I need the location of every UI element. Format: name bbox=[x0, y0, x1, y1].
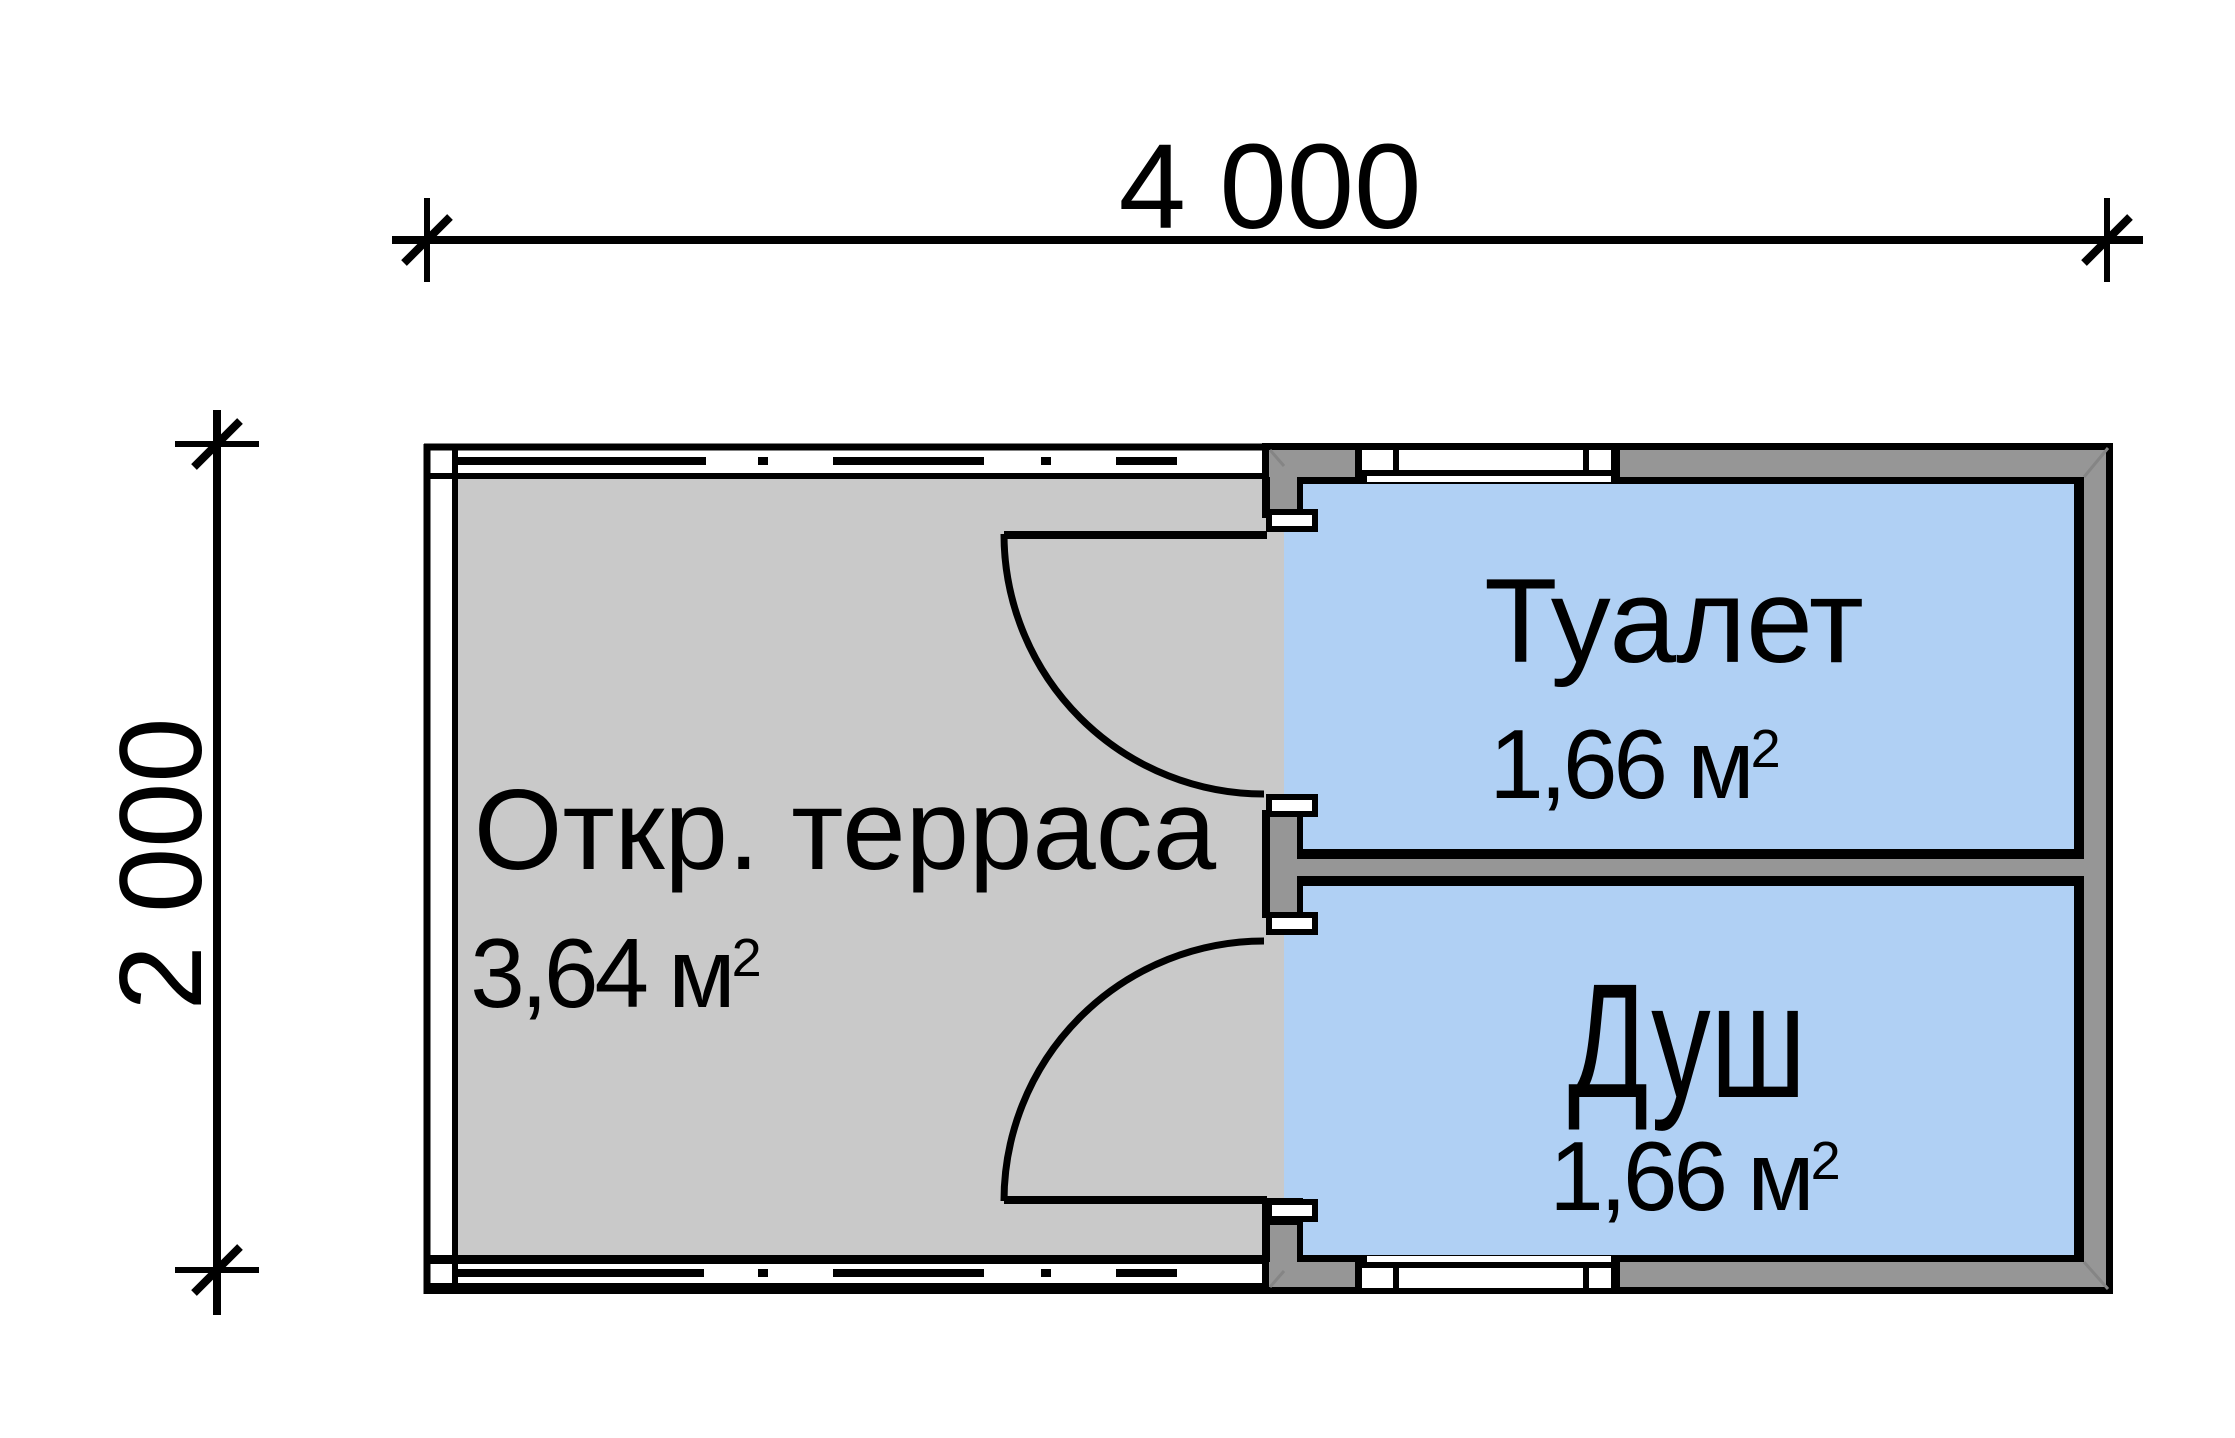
svg-text:1,66 м2: 1,66 м2 bbox=[1489, 709, 1780, 819]
svg-text:Душ: Душ bbox=[1568, 951, 1806, 1133]
svg-text:Откр. терраса: Откр. терраса bbox=[474, 767, 1217, 894]
svg-text:1,66 м2: 1,66 м2 bbox=[1549, 1121, 1840, 1231]
svg-text:3,64 м2: 3,64 м2 bbox=[470, 918, 761, 1028]
svg-text:4 000: 4 000 bbox=[1119, 118, 1422, 254]
svg-text:Туалет: Туалет bbox=[1484, 554, 1864, 688]
svg-text:2 000: 2 000 bbox=[95, 718, 226, 1011]
